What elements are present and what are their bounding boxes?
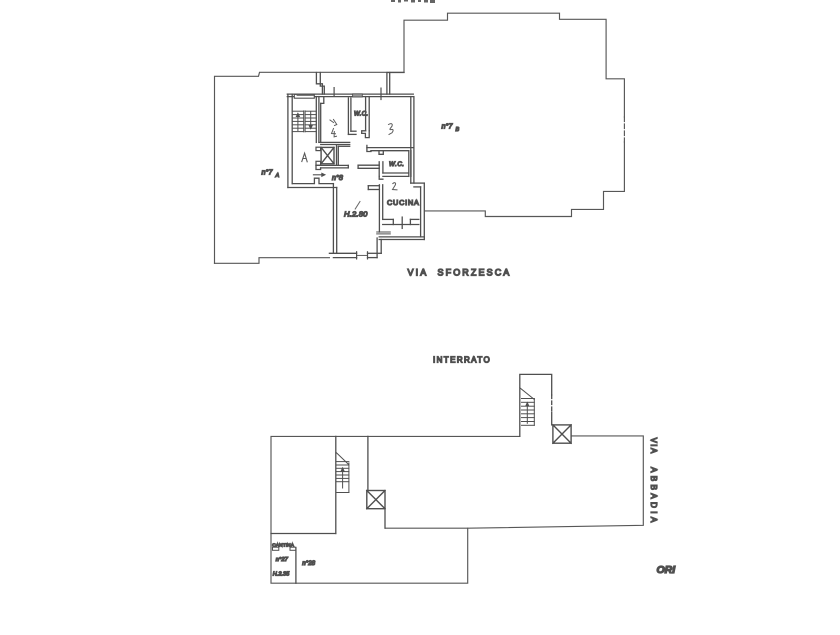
svg-text:A: A [275,173,280,179]
svg-text:VIA: VIA [649,438,658,455]
svg-text:W.C.: W.C. [354,112,368,118]
svg-text:ORI: ORI [657,564,677,576]
svg-text:H.2.35: H.2.35 [273,572,290,578]
svg-text:CUCINA: CUCINA [387,198,420,207]
svg-text:SFORZESCA: SFORZESCA [438,267,512,277]
svg-text:H.2.80: H.2.80 [344,209,368,218]
svg-text:n°27: n°27 [276,557,289,563]
svg-text:ABBADIA: ABBADIA [649,467,658,526]
svg-text:n°28: n°28 [302,560,315,567]
svg-text:VIA: VIA [408,267,429,277]
svg-text:W.C.: W.C. [389,161,405,168]
svg-text:CANTINA: CANTINA [272,543,294,549]
svg-text:INTERRATO: INTERRATO [433,356,491,365]
svg-text:B: B [456,127,460,133]
svg-text:n°7: n°7 [262,168,274,177]
svg-text:n°7: n°7 [442,122,454,131]
svg-text:n°8: n°8 [332,173,343,182]
